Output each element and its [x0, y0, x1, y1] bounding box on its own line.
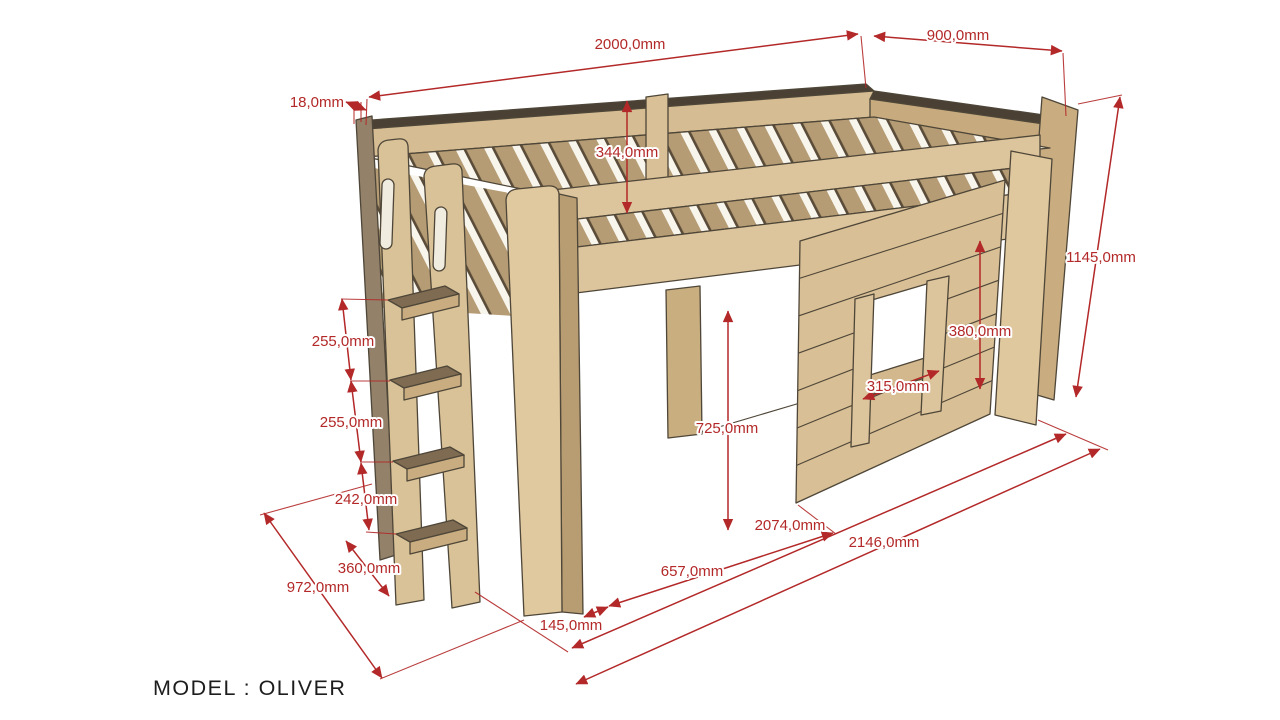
- dim-underbed-clearance: 725,0mm: [696, 311, 759, 530]
- dim-overall-depth: 972,0mm: [264, 513, 382, 678]
- dim-label: 2146,0mm: [849, 534, 920, 551]
- extension-line: [1078, 95, 1122, 104]
- dim-label: 900,0mm: [927, 27, 990, 44]
- dim-label: 380,0mm: [949, 323, 1012, 340]
- bed-diagram-svg: 2000,0mm 900,0mm 18,0mm 344,0mm 1145,0mm…: [0, 0, 1280, 720]
- loft-bed-technical-drawing: 2000,0mm 900,0mm 18,0mm 344,0mm 1145,0mm…: [0, 0, 1280, 720]
- handle-slot-1: [380, 179, 394, 249]
- dim-label: 2074,0mm: [755, 517, 826, 534]
- model-label: MODEL : OLIVER: [153, 676, 346, 700]
- dim-bed-length-top: 2000,0mm: [369, 34, 858, 97]
- dim-label: 18,0mm: [290, 94, 344, 111]
- dim-label: 2000,0mm: [595, 36, 666, 53]
- dim-label: 344,0mm: [596, 144, 659, 161]
- dim-label: 1145,0mm: [1066, 249, 1136, 266]
- extension-line: [380, 620, 524, 679]
- dim-label: 255,0mm: [320, 414, 383, 431]
- dim-label: 972,0mm: [287, 579, 350, 596]
- dim-overall-height: 1145,0mm: [1066, 97, 1136, 397]
- bed-structure: [356, 84, 1078, 616]
- dim-underbed-opening: 657,0mm: [609, 533, 833, 606]
- dim-panel-thickness: 18,0mm: [290, 94, 366, 111]
- dim-label: 315,0mm: [867, 378, 930, 395]
- underbed-back-post: [666, 286, 702, 438]
- dim-label: 242,0mm: [335, 491, 398, 508]
- dim-label: 360,0mm: [338, 560, 401, 577]
- front-left-leg: [506, 186, 583, 616]
- dim-label: 255,0mm: [312, 333, 375, 350]
- dim-label: 657,0mm: [661, 563, 724, 580]
- dim-label: 145,0mm: [540, 617, 603, 634]
- handle-slot-2: [433, 207, 447, 271]
- extension-line: [861, 36, 866, 88]
- dim-label: 725,0mm: [696, 420, 759, 437]
- extension-line: [1038, 420, 1108, 450]
- leg-front-face: [506, 186, 562, 616]
- dim-bed-width-top: 900,0mm: [874, 27, 1062, 51]
- dim-shelf-gap-top: 255,0mm: [312, 299, 375, 380]
